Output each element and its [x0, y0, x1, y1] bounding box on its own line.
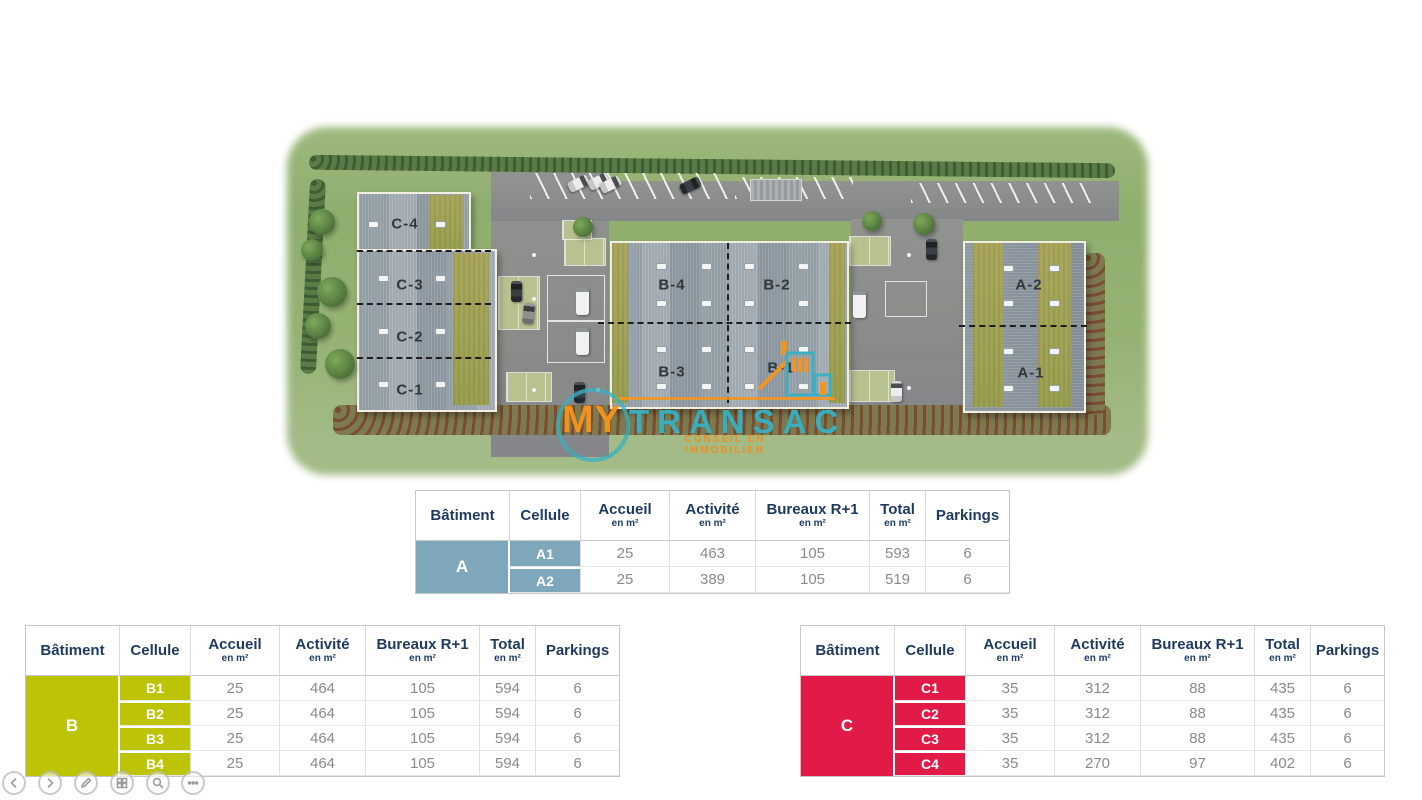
column-header: Cellule — [895, 626, 966, 676]
chevron-left-icon — [8, 777, 20, 789]
value-cell: 464 — [280, 701, 366, 726]
cellule-cell: C2 — [895, 701, 966, 726]
value-cell: 435 — [1255, 701, 1311, 726]
column-header: Totalen m² — [870, 491, 926, 541]
value-cell: 464 — [280, 726, 366, 751]
value-cell: 464 — [280, 751, 366, 776]
value-cell: 6 — [1311, 701, 1384, 726]
cellule-cell: C3 — [895, 726, 966, 751]
column-header: Activitéen m² — [670, 491, 756, 541]
value-cell: 25 — [191, 751, 280, 776]
value-cell: 6 — [536, 751, 619, 776]
value-cell: 88 — [1141, 676, 1255, 701]
table-batiment-b: BâtimentCelluleAccueilen m²Activitéen m²… — [25, 625, 620, 777]
cellule-cell: C4 — [895, 751, 966, 776]
column-header: Accueilen m² — [966, 626, 1055, 676]
value-cell: 594 — [480, 726, 536, 751]
value-cell: 88 — [1141, 726, 1255, 751]
slides-grid-icon — [116, 777, 128, 789]
chevron-right-icon — [44, 777, 56, 789]
cellule-cell: C1 — [895, 676, 966, 701]
value-cell: 594 — [480, 701, 536, 726]
value-cell: 6 — [536, 676, 619, 701]
more-options-button[interactable] — [181, 771, 205, 795]
previous-slide-button[interactable] — [2, 771, 26, 795]
value-cell: 593 — [870, 541, 926, 567]
column-header: Accueilen m² — [581, 491, 670, 541]
table-batiment-c: BâtimentCelluleAccueilen m²Activitéen m²… — [800, 625, 1385, 777]
column-header: Totalen m² — [480, 626, 536, 676]
column-header: Parkings — [536, 626, 619, 676]
magnifier-icon — [152, 777, 164, 789]
batiment-cell: A — [416, 541, 510, 593]
column-header: Bureaux R+1en m² — [756, 491, 870, 541]
all-slides-button[interactable] — [110, 771, 134, 795]
value-cell: 6 — [536, 701, 619, 726]
column-header: Bureaux R+1en m² — [366, 626, 480, 676]
value-cell: 35 — [966, 701, 1055, 726]
column-header: Parkings — [926, 491, 1009, 541]
value-cell: 35 — [966, 676, 1055, 701]
value-cell: 35 — [966, 726, 1055, 751]
value-cell: 463 — [670, 541, 756, 567]
value-cell: 105 — [366, 751, 480, 776]
value-cell: 6 — [926, 541, 1009, 567]
value-cell: 35 — [966, 751, 1055, 776]
batiment-cell: C — [801, 676, 895, 776]
table-batiment-a: BâtimentCelluleAccueilen m²Activitéen m²… — [415, 490, 1010, 594]
value-cell: 105 — [366, 701, 480, 726]
value-cell: 25 — [581, 541, 670, 567]
cellule-cell: A1 — [510, 541, 581, 567]
value-cell: 435 — [1255, 676, 1311, 701]
next-slide-button[interactable] — [38, 771, 62, 795]
value-cell: 594 — [480, 676, 536, 701]
pen-tools-button[interactable] — [74, 771, 98, 795]
column-header: Cellule — [510, 491, 581, 541]
mytransac-watermark: MY TRANSAC CONSEIL EN IMMOBILIER — [295, 135, 1140, 467]
value-cell: 270 — [1055, 751, 1141, 776]
value-cell: 105 — [756, 541, 870, 567]
zoom-slide-button[interactable] — [146, 771, 170, 795]
value-cell: 6 — [1311, 676, 1384, 701]
cellule-cell: A2 — [510, 567, 581, 593]
value-cell: 519 — [870, 567, 926, 593]
value-cell: 88 — [1141, 701, 1255, 726]
value-cell: 389 — [670, 567, 756, 593]
column-header: Bâtiment — [801, 626, 895, 676]
column-header: Parkings — [1311, 626, 1384, 676]
value-cell: 105 — [366, 676, 480, 701]
value-cell: 6 — [1311, 751, 1384, 776]
value-cell: 435 — [1255, 726, 1311, 751]
column-header: Bâtiment — [416, 491, 510, 541]
column-header: Accueilen m² — [191, 626, 280, 676]
value-cell: 464 — [280, 676, 366, 701]
logo-building-icon — [757, 341, 832, 416]
cellule-cell: B3 — [120, 726, 191, 751]
value-cell: 6 — [536, 726, 619, 751]
value-cell: 6 — [1311, 726, 1384, 751]
value-cell: 312 — [1055, 676, 1141, 701]
logo-word-my: MY — [562, 399, 621, 442]
batiment-cell: B — [26, 676, 120, 776]
column-header: Totalen m² — [1255, 626, 1311, 676]
site-plan: MY TRANSAC CONSEIL EN IMMOBILIER C-4C-3C… — [295, 135, 1140, 467]
column-header: Activitéen m² — [280, 626, 366, 676]
column-header: Bureaux R+1en m² — [1141, 626, 1255, 676]
value-cell: 594 — [480, 751, 536, 776]
pen-icon — [80, 777, 92, 789]
value-cell: 25 — [191, 676, 280, 701]
value-cell: 25 — [581, 567, 670, 593]
column-header: Activitéen m² — [1055, 626, 1141, 676]
column-header: Cellule — [120, 626, 191, 676]
slide-canvas: MY TRANSAC CONSEIL EN IMMOBILIER C-4C-3C… — [0, 0, 1422, 800]
cellule-cell: B2 — [120, 701, 191, 726]
value-cell: 25 — [191, 701, 280, 726]
value-cell: 105 — [756, 567, 870, 593]
cellule-cell: B1 — [120, 676, 191, 701]
value-cell: 6 — [926, 567, 1009, 593]
ellipsis-icon — [187, 777, 199, 789]
value-cell: 97 — [1141, 751, 1255, 776]
value-cell: 402 — [1255, 751, 1311, 776]
logo-tagline: CONSEIL EN IMMOBILIER — [645, 434, 805, 456]
value-cell: 25 — [191, 726, 280, 751]
value-cell: 312 — [1055, 726, 1141, 751]
value-cell: 105 — [366, 726, 480, 751]
value-cell: 312 — [1055, 701, 1141, 726]
column-header: Bâtiment — [26, 626, 120, 676]
